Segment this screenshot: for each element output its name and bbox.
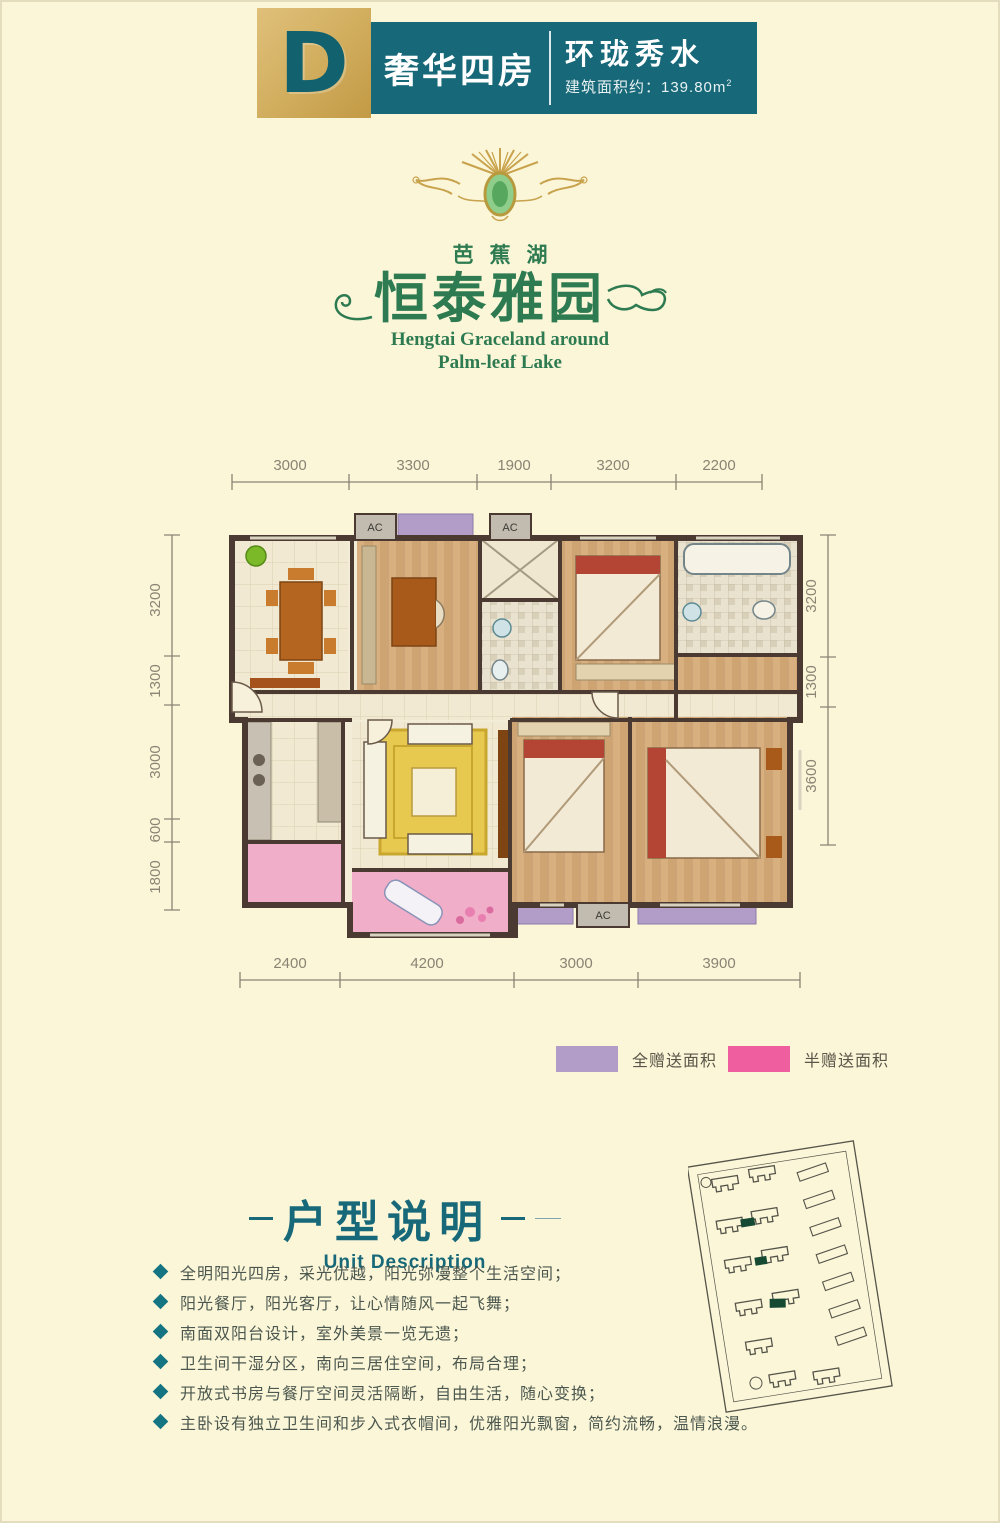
diamond-bullet-icon: [153, 1354, 169, 1370]
svg-text:AC: AC: [595, 910, 610, 922]
svg-text:2200: 2200: [702, 457, 735, 474]
floor-plan: 3000 3300 1900 3200 2200 3200 1300 3000 …: [140, 430, 860, 1010]
svg-text:1800: 1800: [147, 860, 164, 893]
svg-text:3000: 3000: [559, 955, 592, 972]
feature-text: 南面双阳台设计，室外美景一览无遗；: [180, 1320, 469, 1344]
flourish-left-icon: [330, 273, 374, 325]
unit-type-label: 奢华四房: [371, 43, 549, 94]
title-dash-right: [501, 1217, 525, 1220]
area-sup: 2: [726, 78, 732, 88]
header-banner: 奢华四房 环珑秀水 建筑面积约：139.80m2: [371, 22, 757, 114]
logo-lake-label: 芭蕉湖: [300, 239, 700, 269]
logo-name: 恒泰雅园: [374, 271, 606, 328]
svg-text:4200: 4200: [410, 955, 443, 972]
feature-text: 全明阳光四房，采光优越，阳光弥漫整个生活空间；: [180, 1260, 571, 1284]
svg-text:3600: 3600: [803, 759, 820, 792]
diamond-bullet-icon: [153, 1414, 169, 1430]
feature-item: 阳光餐厅，阳光客厅，让心情随风一起飞舞；: [155, 1293, 715, 1310]
feature-text: 主卧设有独立卫生间和步入式衣帽间，优雅阳光飘窗，简约流畅，温情浪漫。: [180, 1410, 758, 1434]
area-value: 建筑面积约：139.80m: [565, 79, 726, 96]
full-gift-swatch: [556, 1046, 618, 1072]
svg-text:1300: 1300: [803, 665, 820, 698]
poster-page: D 奢华四房 环珑秀水 建筑面积约：139.80m2 芭蕉湖: [0, 0, 1000, 1523]
diamond-bullet-icon: [153, 1264, 169, 1280]
feature-item: 开放式书房与餐厅空间灵活隔断，自由生活，随心变换；: [155, 1383, 715, 1400]
diamond-bullet-icon: [153, 1384, 169, 1400]
logo-en-line2: Palm-leaf Lake: [300, 351, 700, 375]
half-gift-label: 半赠送面积: [804, 1047, 889, 1071]
feature-item: 全明阳光四房，采光优越，阳光弥漫整个生活空间；: [155, 1263, 715, 1280]
feature-item: 卫生间干湿分区，南向三居住空间，布局合理；: [155, 1353, 715, 1370]
legend-half-gift: 半赠送面积: [728, 1046, 889, 1072]
banner-right: 环珑秀水 建筑面积约：139.80m2: [551, 39, 757, 97]
svg-text:AC: AC: [502, 522, 517, 534]
svg-text:3200: 3200: [803, 579, 820, 612]
legend-full-gift: 全赠送面积: [556, 1046, 717, 1072]
description-title: 户型说明: [283, 1186, 491, 1250]
svg-text:3900: 3900: [702, 955, 735, 972]
svg-text:600: 600: [147, 817, 164, 842]
svg-text:3000: 3000: [147, 745, 164, 778]
svg-text:1900: 1900: [497, 457, 530, 474]
feature-text: 开放式书房与餐厅空间灵活隔断，自由生活，随心变换；: [180, 1380, 605, 1404]
site-map: [688, 1138, 898, 1418]
full-gift-label: 全赠送面积: [632, 1047, 717, 1071]
area-text: 建筑面积约：139.80m2: [565, 76, 757, 97]
feature-list: 全明阳光四房，采光优越，阳光弥漫整个生活空间； 阳光餐厅，阳光客厅，让心情随风一…: [155, 1263, 715, 1443]
slogan: 环珑秀水: [565, 39, 757, 72]
cloud-flourish-icon: [606, 273, 670, 325]
svg-text:3000: 3000: [273, 457, 306, 474]
title-dash-left: [249, 1217, 273, 1220]
title-rule: [535, 1218, 561, 1219]
svg-text:2400: 2400: [273, 955, 306, 972]
unit-letter-block: D: [257, 8, 371, 118]
svg-text:1300: 1300: [147, 664, 164, 697]
svg-text:3300: 3300: [396, 457, 429, 474]
brand-logo: 芭蕉湖 恒泰雅园 Hengtai Graceland around Palm-l…: [300, 138, 700, 375]
svg-text:3200: 3200: [596, 457, 629, 474]
diamond-bullet-icon: [153, 1294, 169, 1310]
feature-text: 卫生间干湿分区，南向三居住空间，布局合理；: [180, 1350, 537, 1374]
feature-item: 南面双阳台设计，室外美景一览无遗；: [155, 1323, 715, 1340]
feature-item: 主卧设有独立卫生间和步入式衣帽间，优雅阳光飘窗，简约流畅，温情浪漫。: [155, 1413, 715, 1430]
half-gift-swatch: [728, 1046, 790, 1072]
feature-text: 阳光餐厅，阳光客厅，让心情随风一起飞舞；: [180, 1290, 520, 1314]
svg-text:AC: AC: [367, 522, 382, 534]
svg-text:3200: 3200: [147, 583, 164, 616]
logo-en-line1: Hengtai Graceland around: [300, 328, 700, 352]
unit-letter: D: [279, 21, 349, 105]
diamond-bullet-icon: [153, 1324, 169, 1340]
crown-icon: [400, 138, 600, 230]
